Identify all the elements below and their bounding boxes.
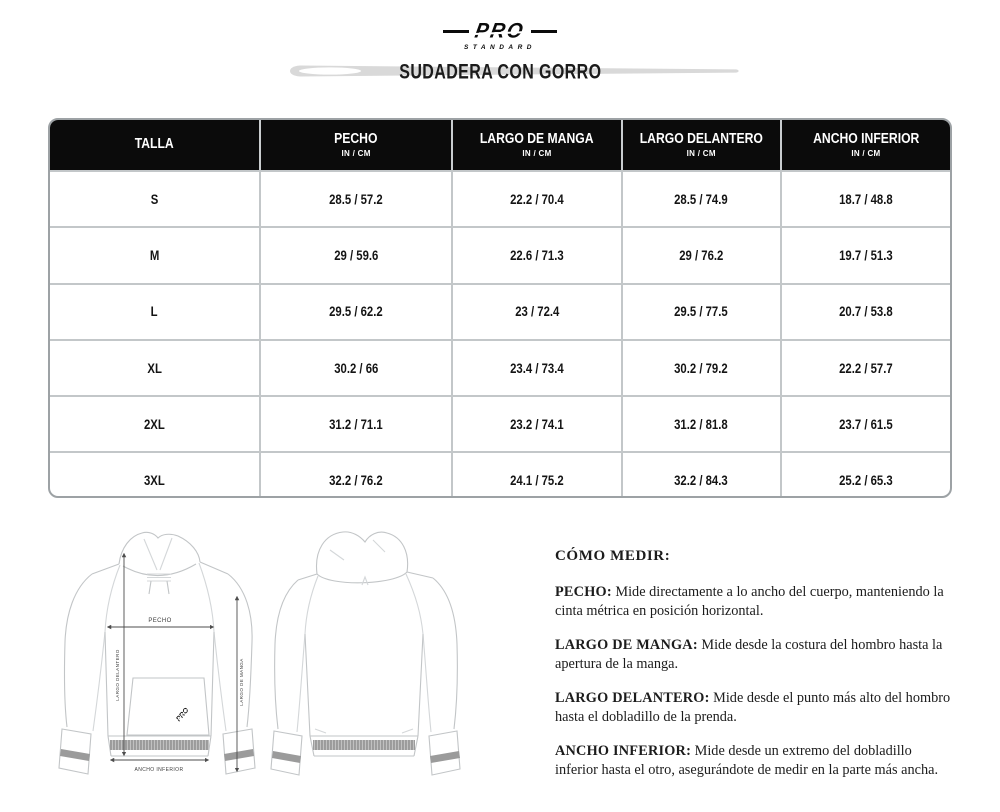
table-row: M 29 / 59.6 22.6 / 71.3 29 / 76.2 19.7 /… bbox=[50, 226, 950, 282]
brand-wordmark: PRO bbox=[471, 19, 529, 43]
value-cell: 32.2 / 76.2 bbox=[259, 453, 452, 498]
size-cell: L bbox=[50, 285, 259, 339]
value-cell: 19.7 / 51.3 bbox=[780, 228, 950, 282]
unit-label: IN / CM bbox=[522, 150, 551, 159]
diagram-label-largo-de-manga: LARGO DE MANGA bbox=[239, 658, 244, 706]
table-row: XL 30.2 / 66 23.4 / 73.4 30.2 / 79.2 22.… bbox=[50, 339, 950, 395]
value-cell: 29 / 59.6 bbox=[259, 228, 452, 282]
value-cell: 28.5 / 74.9 bbox=[621, 172, 780, 226]
column-header-talla: TALLA bbox=[50, 120, 259, 170]
value-cell: 30.2 / 66 bbox=[259, 341, 452, 395]
value-cell: 29.5 / 77.5 bbox=[621, 285, 780, 339]
measure-text: Mide directamente a lo ancho del cuerpo,… bbox=[555, 584, 944, 619]
measure-term: ANCHO INFERIOR: bbox=[555, 743, 691, 759]
measure-item-ancho-inferior: ANCHO INFERIOR: Mide desde un extremo de… bbox=[555, 742, 953, 779]
unit-label: IN / CM bbox=[687, 150, 716, 159]
pocket-logo: PRO bbox=[175, 707, 190, 724]
column-header-pecho: PECHO IN / CM bbox=[259, 120, 452, 170]
diagram-label-ancho-inferior: ANCHO INFERIOR bbox=[135, 767, 184, 773]
table-row: 3XL 32.2 / 76.2 24.1 / 75.2 32.2 / 84.3 … bbox=[50, 451, 950, 498]
column-header-ancho-inferior: ANCHO INFERIOR IN / CM bbox=[780, 120, 950, 170]
hoodie-back-diagram bbox=[270, 530, 470, 790]
value-cell: 32.2 / 84.3 bbox=[621, 453, 780, 498]
how-to-measure-section: CÓMO MEDIR: PECHO: Mide directamente a l… bbox=[555, 548, 953, 796]
measure-term: PECHO: bbox=[555, 584, 612, 600]
value-cell: 28.5 / 57.2 bbox=[259, 172, 452, 226]
brand-logo: PRO STANDARD bbox=[0, 20, 1000, 51]
diagram-label-pecho: PECHO bbox=[148, 618, 171, 624]
value-cell: 30.2 / 79.2 bbox=[621, 341, 780, 395]
table-header: TALLA PECHO IN / CM LARGO DE MANGA IN / … bbox=[50, 120, 950, 170]
brand-tagline: STANDARD bbox=[0, 44, 1000, 51]
value-cell: 29.5 / 62.2 bbox=[259, 285, 452, 339]
unit-label: IN / CM bbox=[851, 150, 880, 159]
diagram-label-largo-delantero: LARGO DELANTERO bbox=[115, 649, 120, 700]
value-cell: 23 / 72.4 bbox=[451, 285, 620, 339]
value-cell: 29 / 76.2 bbox=[621, 228, 780, 282]
value-cell: 22.2 / 57.7 bbox=[780, 341, 950, 395]
size-cell: M bbox=[50, 228, 259, 282]
size-cell: XL bbox=[50, 341, 259, 395]
size-table: TALLA PECHO IN / CM LARGO DE MANGA IN / … bbox=[48, 118, 952, 498]
measure-item-largo-delantero: LARGO DELANTERO: Mide desde el punto más… bbox=[555, 689, 953, 726]
value-cell: 18.7 / 48.8 bbox=[780, 172, 950, 226]
size-guide-page: PRO STANDARD SUDADERA CON GORRO TALLA PE… bbox=[0, 0, 1000, 812]
value-cell: 24.1 / 75.2 bbox=[451, 453, 620, 498]
logo-left-bar bbox=[443, 30, 469, 33]
measure-term: LARGO DELANTERO: bbox=[555, 690, 710, 706]
value-cell: 22.6 / 71.3 bbox=[451, 228, 620, 282]
value-cell: 22.2 / 70.4 bbox=[451, 172, 620, 226]
value-cell: 31.2 / 81.8 bbox=[621, 397, 780, 451]
measure-item-largo-de-manga: LARGO DE MANGA: Mide desde la costura de… bbox=[555, 636, 953, 673]
table-row: L 29.5 / 62.2 23 / 72.4 29.5 / 77.5 20.7… bbox=[50, 283, 950, 339]
table-row: S 28.5 / 57.2 22.2 / 70.4 28.5 / 74.9 18… bbox=[50, 170, 950, 226]
unit-label: IN / CM bbox=[341, 150, 370, 159]
page-title: SUDADERA CON GORRO bbox=[0, 61, 1000, 84]
value-cell: 23.4 / 73.4 bbox=[451, 341, 620, 395]
value-cell: 25.2 / 65.3 bbox=[780, 453, 950, 498]
value-cell: 23.7 / 61.5 bbox=[780, 397, 950, 451]
measure-heading: CÓMO MEDIR: bbox=[555, 548, 953, 565]
column-header-largo-de-manga: LARGO DE MANGA IN / CM bbox=[451, 120, 620, 170]
column-header-largo-delantero: LARGO DELANTERO IN / CM bbox=[621, 120, 780, 170]
table-row: 2XL 31.2 / 71.1 23.2 / 74.1 31.2 / 81.8 … bbox=[50, 395, 950, 451]
hoodie-front-diagram: PRO PECHO LARGO DELANTERO LARGO DE MANGA… bbox=[56, 530, 256, 790]
measure-item-pecho: PECHO: Mide directamente a lo ancho del … bbox=[555, 583, 953, 620]
size-cell: 3XL bbox=[50, 453, 259, 498]
measure-term: LARGO DE MANGA: bbox=[555, 637, 698, 653]
size-cell: 2XL bbox=[50, 397, 259, 451]
size-cell: S bbox=[50, 172, 259, 226]
value-cell: 23.2 / 74.1 bbox=[451, 397, 620, 451]
value-cell: 31.2 / 71.1 bbox=[259, 397, 452, 451]
value-cell: 20.7 / 53.8 bbox=[780, 285, 950, 339]
logo-right-bar bbox=[531, 30, 557, 33]
